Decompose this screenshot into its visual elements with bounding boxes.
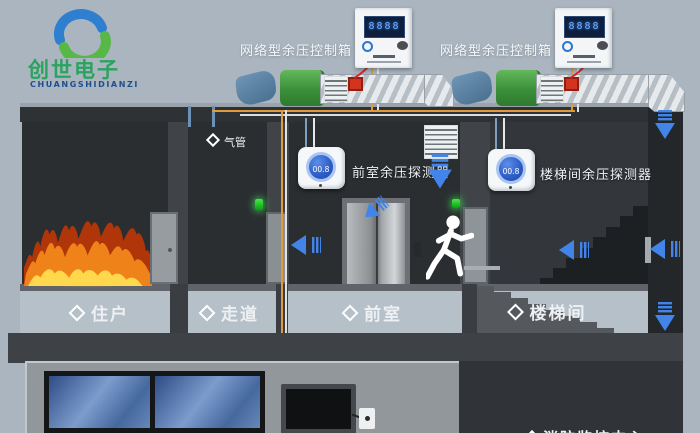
stairwell-detector-label: 楼梯间余压探测器 — [540, 164, 652, 183]
detector-wire — [305, 118, 307, 148]
air-pipe-label: 气管 — [208, 134, 246, 150]
monitoring-room-dark — [459, 361, 683, 433]
fine-text-line — [567, 61, 601, 63]
duct-elbow — [424, 74, 454, 107]
buzzer — [597, 41, 608, 50]
fan-blade-icon — [235, 68, 277, 108]
exit-led-stairwell — [452, 199, 460, 208]
control-box-screen: 8888 — [564, 16, 605, 38]
duct-louver — [540, 76, 564, 102]
running-person-icon — [426, 214, 474, 286]
elevator-call-panel — [414, 242, 421, 257]
pressure-control-box-right: 8888 — [555, 8, 612, 68]
stairs-upper — [540, 196, 648, 288]
fan-blade-icon — [451, 68, 493, 108]
fan-housing — [496, 70, 541, 106]
door-handle — [168, 248, 172, 252]
diamond-icon — [507, 304, 524, 321]
stairwell-pressure-detector: 00.8 — [488, 149, 535, 191]
buzzer — [397, 41, 408, 50]
resident-door — [150, 212, 178, 284]
outlet-hole — [365, 416, 370, 421]
monitoring-console-room — [25, 361, 459, 433]
control-box-screen: 8888 — [364, 16, 405, 38]
fire-flames — [24, 204, 152, 286]
room-label-resident: 住户 — [71, 300, 129, 325]
duct-louver — [324, 76, 348, 102]
detector-wire — [313, 118, 315, 148]
swirl-logo-icon — [50, 8, 116, 58]
diamond-icon — [206, 133, 220, 147]
cable-orange-trunk — [281, 110, 283, 358]
monitor — [281, 384, 356, 433]
band-wall-3 — [462, 284, 477, 333]
video-wall-screen — [49, 376, 150, 428]
airflow-down-arrow — [654, 302, 676, 332]
band-wall-1 — [170, 284, 188, 333]
detector-display: 00.8 — [496, 154, 526, 184]
detector-button — [319, 184, 322, 187]
detector-wire — [495, 118, 497, 150]
control-box-label-right: 网络型余压控制箱 — [440, 40, 552, 59]
diamond-icon — [342, 305, 359, 322]
model-text-line — [373, 55, 395, 58]
corridor-door — [266, 212, 287, 284]
control-box-label-left: 网络型余压控制箱 — [240, 40, 352, 59]
cable-orange-run — [212, 110, 575, 112]
monitoring-center-label: 消防监控中心 — [527, 427, 645, 433]
duct-elbow — [648, 74, 685, 112]
model-text-line — [573, 55, 595, 58]
pressure-control-box-left: 8888 — [355, 8, 412, 68]
detector-button — [509, 186, 512, 189]
fine-text-line — [367, 61, 401, 63]
pressure-system-diagram: 创世电子 CHUANGSHIDIANZI 住户 走道 前室 楼梯间 — [0, 0, 700, 433]
wall-outlet — [359, 408, 375, 429]
monitor-screen — [286, 389, 351, 429]
brand-name-pinyin: CHUANGSHIDIANZI — [30, 80, 139, 89]
airflow-down-arrow — [654, 110, 676, 140]
front-room-pressure-detector: 00.8 — [298, 147, 345, 189]
brand-dot-icon — [362, 41, 373, 52]
airflow-left-arrow — [559, 239, 589, 261]
detector-display: 00.8 — [306, 152, 336, 182]
video-wall-frame — [44, 371, 265, 433]
exit-led-corridor — [255, 199, 263, 210]
room-label-corridor: 走道 — [201, 300, 259, 325]
airflow-left-arrow — [650, 238, 680, 260]
video-wall-screen — [155, 376, 260, 428]
air-tube — [188, 106, 191, 127]
fan-housing — [280, 70, 325, 106]
room-label-front-room: 前室 — [344, 300, 402, 325]
room-label-stairwell: 楼梯间 — [510, 299, 587, 324]
cable-white-run — [240, 114, 571, 116]
airflow-left-arrow — [291, 234, 321, 256]
cable-white-trunk — [285, 110, 287, 333]
diamond-icon — [69, 305, 86, 322]
detector-wire — [503, 118, 505, 150]
bottom-slab — [8, 333, 683, 363]
brand-dot-icon — [562, 41, 573, 52]
diamond-icon — [199, 305, 216, 322]
roof-slab — [20, 103, 683, 122]
airflow-down-arrow — [427, 154, 453, 190]
